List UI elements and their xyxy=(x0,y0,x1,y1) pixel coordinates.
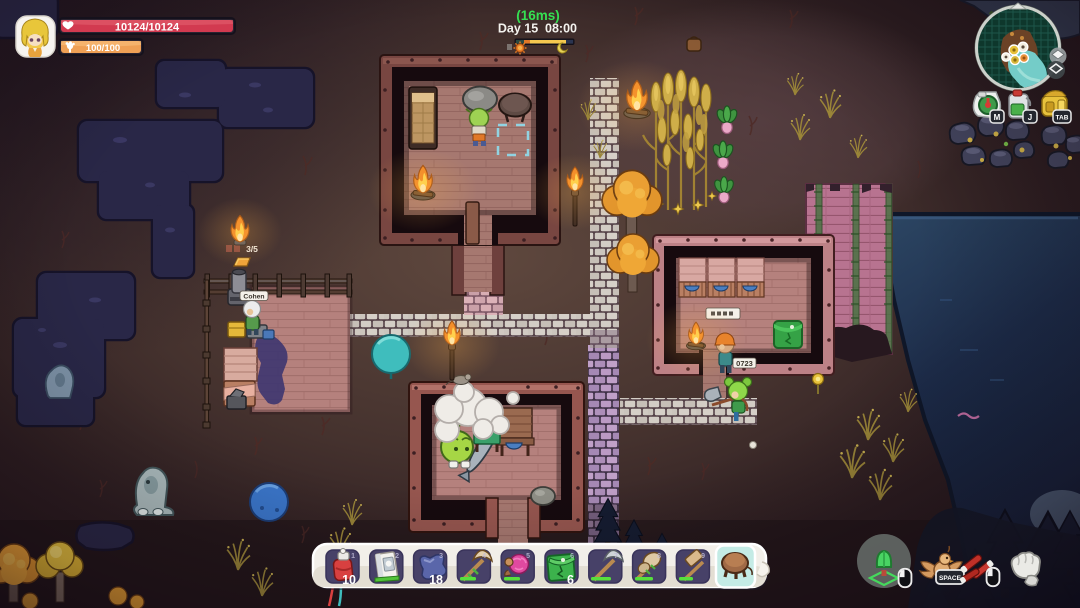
svg-text:8: 8 xyxy=(657,553,661,560)
svg-text:SPACE: SPACE xyxy=(939,575,962,582)
svg-text:10: 10 xyxy=(342,573,356,587)
svg-text:TAB: TAB xyxy=(1056,115,1069,122)
svg-text:M: M xyxy=(994,113,1001,122)
svg-text:Day 15: Day 15 xyxy=(498,22,538,36)
svg-text:08:00: 08:00 xyxy=(545,22,577,36)
svg-text:18: 18 xyxy=(429,573,443,587)
svg-text:100/100: 100/100 xyxy=(86,43,120,54)
svg-text:5: 5 xyxy=(526,553,530,560)
svg-text:2: 2 xyxy=(395,553,399,560)
svg-text:4: 4 xyxy=(482,553,486,560)
svg-text:9: 9 xyxy=(701,553,705,560)
svg-text:J: J xyxy=(1028,113,1032,122)
svg-text:1: 1 xyxy=(351,553,355,560)
svg-text:7: 7 xyxy=(614,553,618,560)
svg-text:6: 6 xyxy=(570,553,574,560)
svg-text:3: 3 xyxy=(439,553,443,560)
svg-text:10124/10124: 10124/10124 xyxy=(115,22,180,34)
svg-text:6: 6 xyxy=(567,573,574,587)
